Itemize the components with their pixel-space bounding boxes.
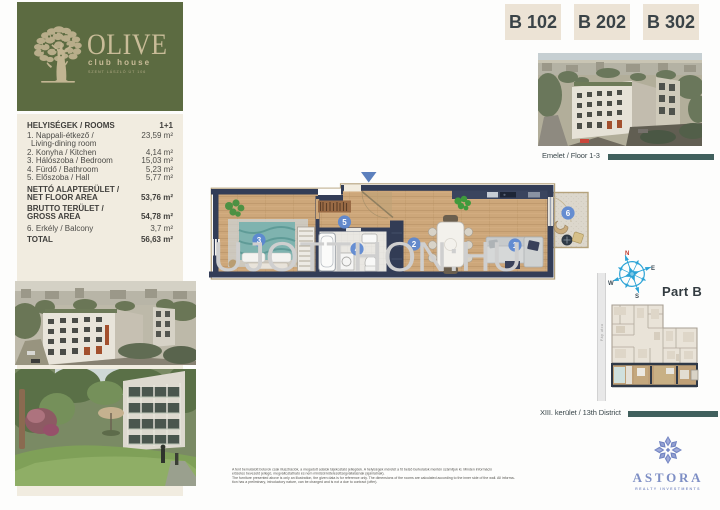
svg-text:E: E xyxy=(651,266,655,272)
svg-text:N: N xyxy=(625,251,629,257)
svg-text:W: W xyxy=(608,281,614,287)
svg-text:6: 6 xyxy=(566,209,571,218)
svg-text:5: 5 xyxy=(342,218,347,227)
svg-text:S: S xyxy=(635,294,639,300)
